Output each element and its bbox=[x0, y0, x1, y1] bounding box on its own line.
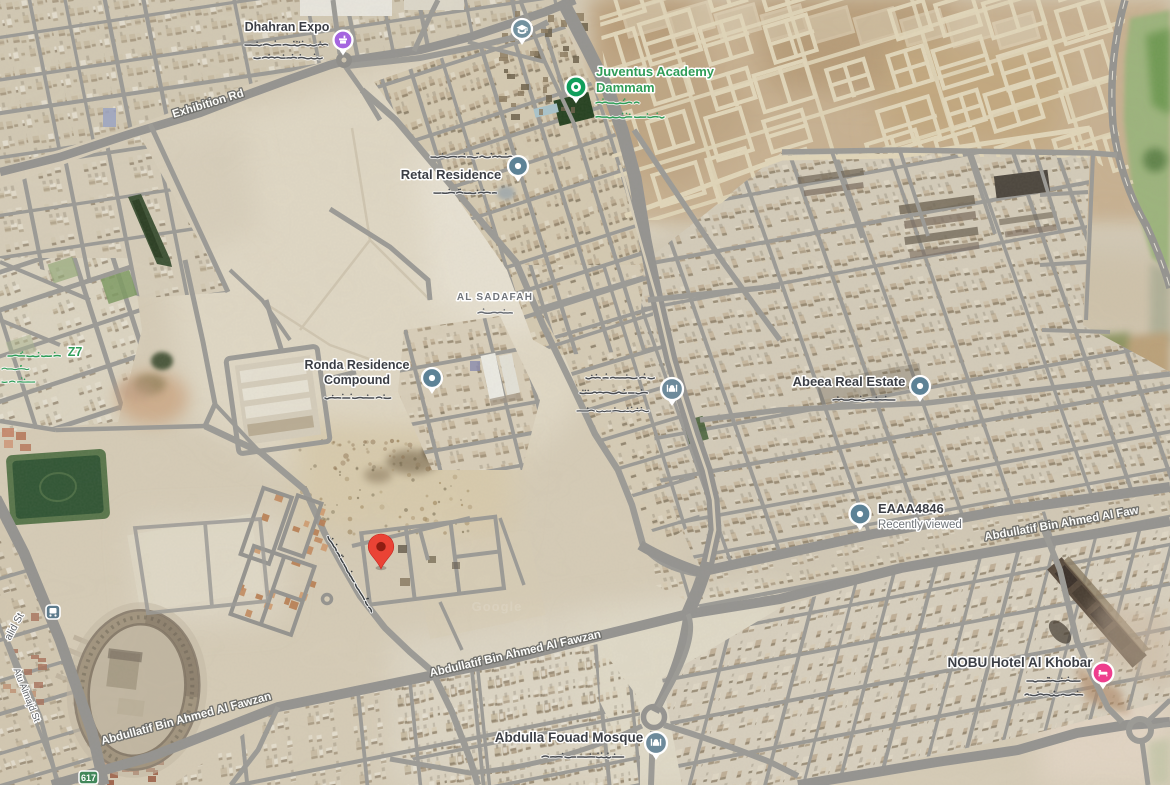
svg-text:Compound: Compound bbox=[324, 373, 390, 387]
svg-text:Google: Google bbox=[472, 599, 523, 614]
svg-text:Recently viewed: Recently viewed bbox=[878, 519, 962, 531]
svg-text:Retal Residence: Retal Residence bbox=[401, 167, 501, 182]
svg-text:NOBU Hotel Al Khobar: NOBU Hotel Al Khobar bbox=[948, 655, 1094, 670]
svg-text:Abdulla Fouad Mosque: Abdulla Fouad Mosque bbox=[495, 730, 644, 745]
svg-text:Dammam: Dammam bbox=[596, 80, 655, 95]
svg-text:Juventus Academy: Juventus Academy bbox=[596, 64, 715, 79]
svg-text:Dhahran Expo: Dhahran Expo bbox=[245, 20, 330, 34]
svg-text:Abeea Real Estate: Abeea Real Estate bbox=[793, 374, 906, 389]
svg-text:Z7: Z7 bbox=[68, 345, 83, 359]
svg-text:EAAA4846: EAAA4846 bbox=[878, 501, 944, 516]
svg-text:617: 617 bbox=[81, 773, 96, 783]
svg-text:Ronda Residence: Ronda Residence bbox=[305, 358, 410, 372]
svg-text:AL SADAFAH: AL SADAFAH bbox=[457, 292, 533, 303]
